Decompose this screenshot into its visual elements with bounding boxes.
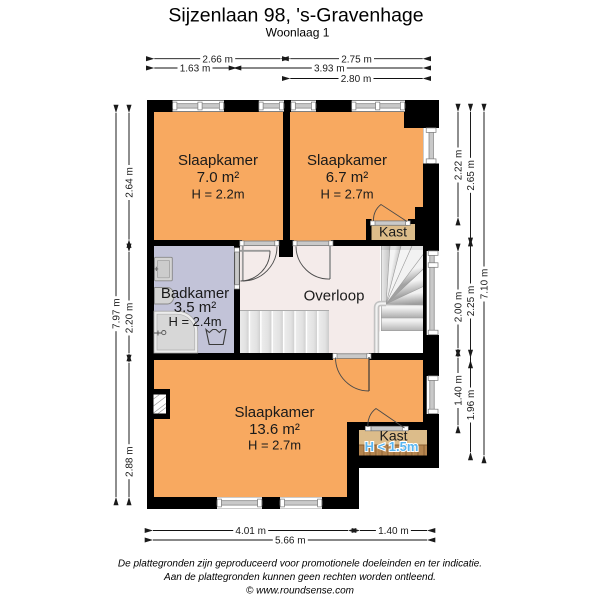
svg-text:Slaapkamer: Slaapkamer: [234, 404, 314, 421]
svg-text:Sijzenlaan 98, 's-Gravenhage: Sijzenlaan 98, 's-Gravenhage: [168, 5, 423, 27]
svg-text:H = 2.7m: H = 2.7m: [248, 438, 301, 453]
svg-text:1.40 m: 1.40 m: [378, 526, 409, 537]
svg-text:2.64 m: 2.64 m: [125, 167, 136, 198]
svg-text:Aan de plattegronden kunnen ge: Aan de plattegronden kunnen geen rechten…: [163, 572, 436, 583]
svg-text:7.10 m: 7.10 m: [480, 269, 491, 300]
svg-text:13.6 m²: 13.6 m²: [249, 421, 300, 438]
svg-text:5.66 m: 5.66 m: [275, 536, 306, 547]
svg-text:2.25 m: 2.25 m: [466, 286, 477, 317]
svg-text:H = 2.2m: H = 2.2m: [191, 187, 244, 202]
svg-text:1.63 m: 1.63 m: [180, 64, 211, 75]
svg-text:De plattegronden zijn geproduc: De plattegronden zijn geproduceerd voor …: [118, 559, 482, 570]
svg-text:© www.roundsense.com: © www.roundsense.com: [246, 586, 354, 597]
svg-text:H = 2.7m: H = 2.7m: [320, 187, 373, 202]
svg-text:2.22 m: 2.22 m: [454, 150, 465, 181]
svg-text:2.20 m: 2.20 m: [125, 303, 136, 334]
svg-text:2.65 m: 2.65 m: [466, 160, 477, 191]
svg-text:Overloop: Overloop: [304, 288, 365, 305]
svg-text:7.97 m: 7.97 m: [112, 298, 123, 329]
svg-text:Woonlaag 1: Woonlaag 1: [266, 26, 330, 40]
svg-text:1.96 m: 1.96 m: [466, 390, 477, 421]
svg-text:1.40 m: 1.40 m: [454, 375, 465, 406]
svg-text:2.88 m: 2.88 m: [125, 446, 136, 477]
svg-text:6.7 m²: 6.7 m²: [326, 169, 369, 186]
svg-text:3.93 m: 3.93 m: [314, 64, 345, 75]
svg-text:7.0 m²: 7.0 m²: [197, 169, 240, 186]
svg-text:Slaapkamer: Slaapkamer: [307, 152, 387, 169]
svg-text:Slaapkamer: Slaapkamer: [178, 152, 258, 169]
svg-text:H < 1.5m: H < 1.5m: [365, 439, 419, 454]
svg-text:H = 2.4m: H = 2.4m: [168, 314, 221, 329]
svg-text:4.01 m: 4.01 m: [235, 526, 266, 537]
svg-text:Kast: Kast: [379, 223, 407, 239]
svg-text:2.80 m: 2.80 m: [341, 74, 372, 85]
svg-text:2.00 m: 2.00 m: [454, 292, 465, 323]
